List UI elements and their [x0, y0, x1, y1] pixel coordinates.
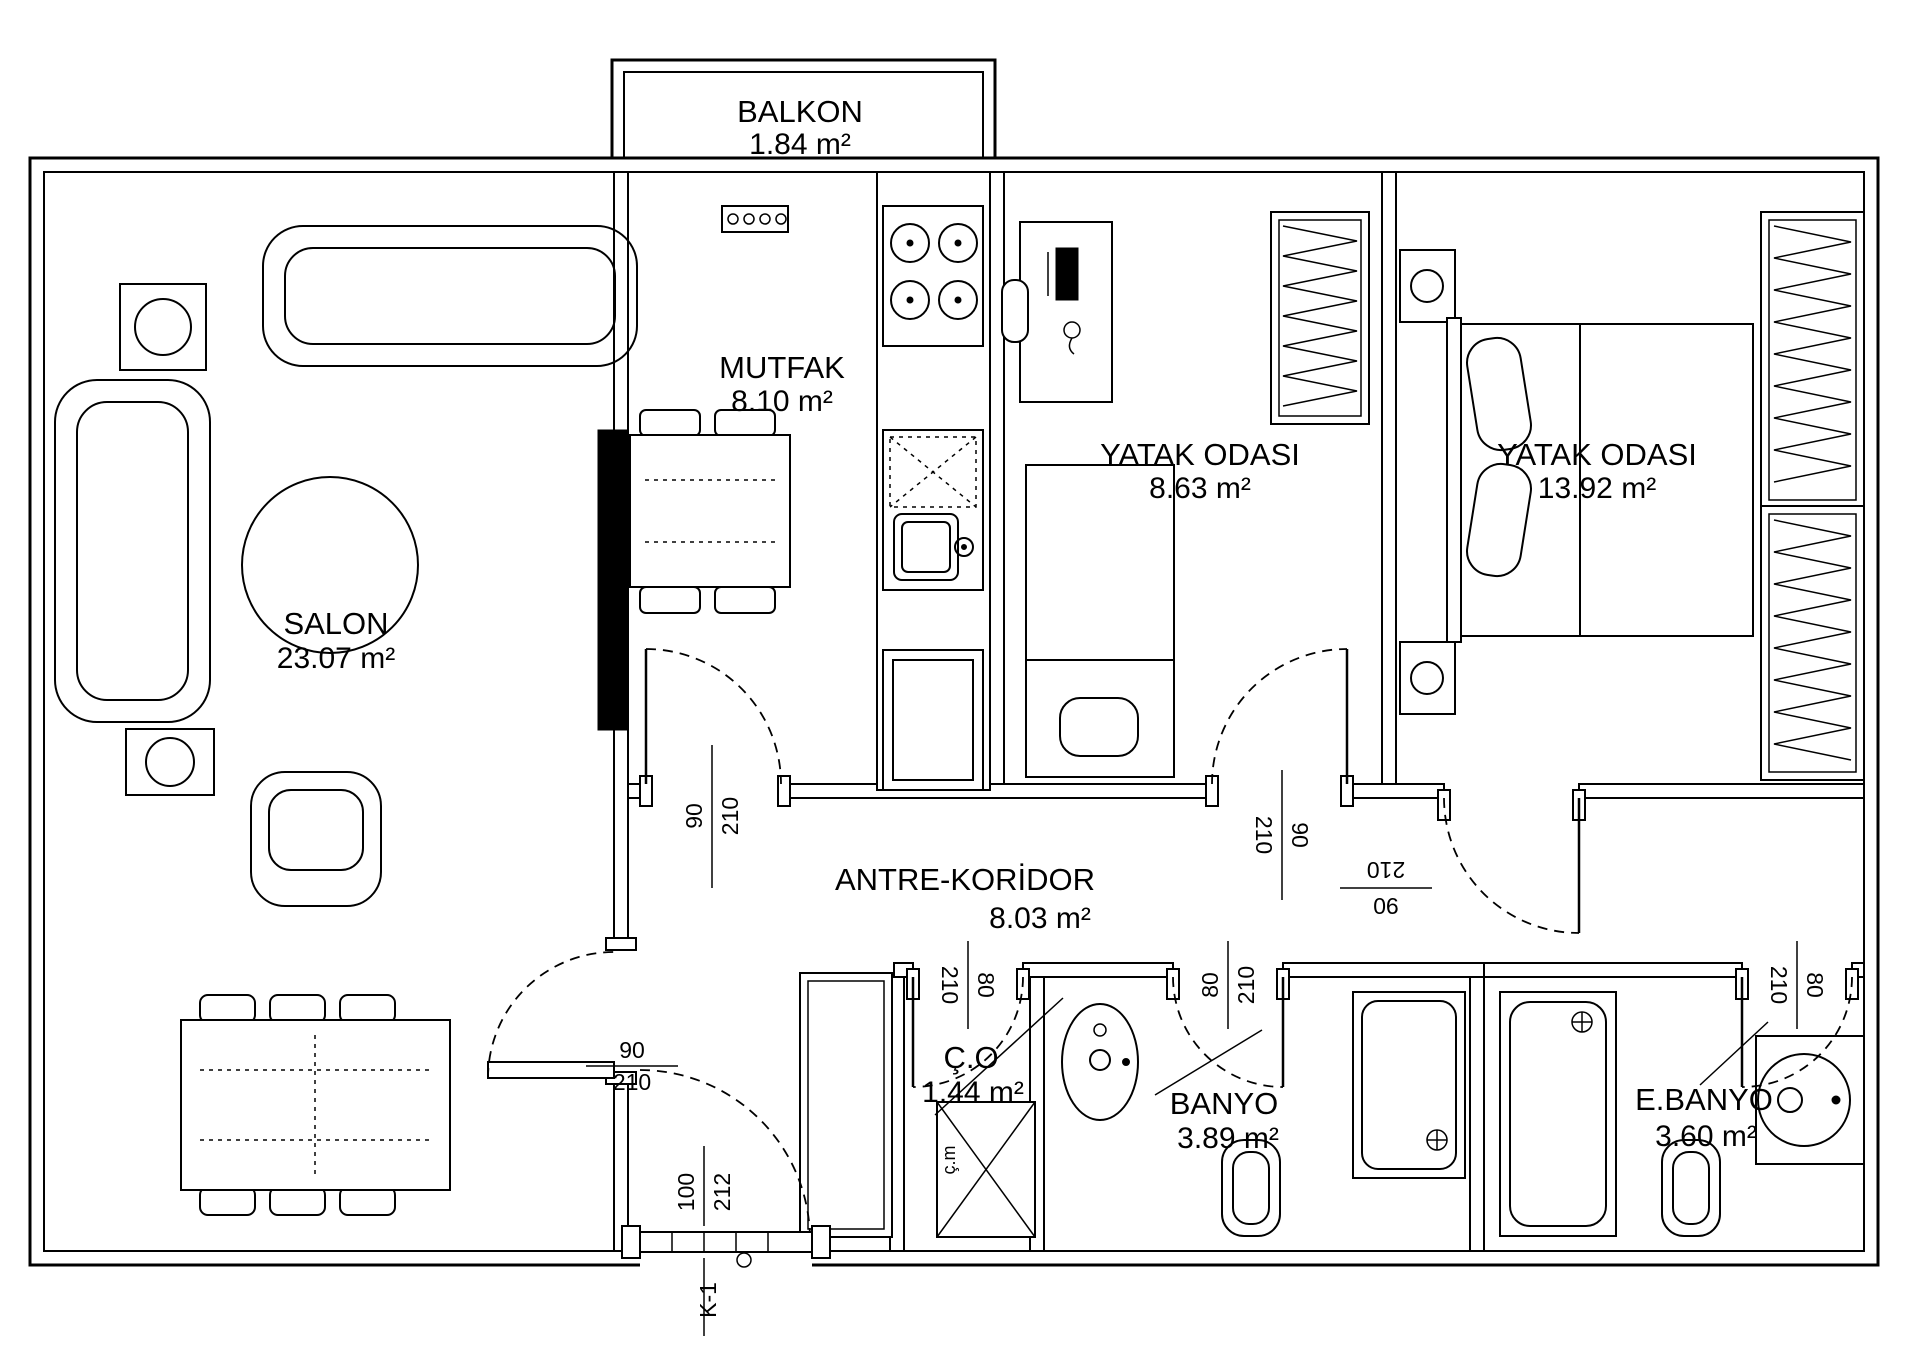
nightstand-bottom — [1400, 642, 1455, 714]
dim-banyo2-door-h: 210 — [1766, 966, 1792, 1004]
toilet-icon-banyo2 — [1662, 1140, 1720, 1236]
dim-entry-door-h: 212 — [709, 1173, 735, 1211]
nightstand-top — [1400, 250, 1455, 322]
washing-machine-label: ç.m — [939, 1146, 959, 1175]
dim-bed1-door-h: 210 — [1251, 816, 1277, 854]
dim-salon-door-w: 90 — [619, 1037, 645, 1063]
area-label-yatak2: 13.92 m² — [1538, 472, 1656, 505]
dim-co-door-h: 210 — [937, 966, 963, 1004]
dim-bed1-door-w: 90 — [1287, 822, 1313, 848]
dining-table — [181, 995, 450, 1215]
wardrobe-right-top — [1761, 212, 1864, 508]
room-label-banyo2: E.BANYO — [1635, 1082, 1773, 1117]
dim-kitchen-door-w: 90 — [681, 803, 707, 829]
single-bed — [1026, 465, 1174, 777]
dim-banyo1-door-h: 210 — [1233, 966, 1259, 1004]
floor-plan-page: ç.m — [0, 0, 1920, 1358]
dim-bed2-door-h: 210 — [1367, 857, 1405, 883]
column — [598, 430, 628, 730]
area-label-banyo2: 3.60 m² — [1655, 1120, 1757, 1153]
room-label-yatak1: YATAK ODASI — [1100, 437, 1300, 472]
area-label-antre: 8.03 m² — [989, 902, 1091, 935]
kitchen-cabinet — [883, 650, 983, 790]
kitchen-sink-icon — [883, 430, 983, 590]
entry-door-code-label: K-1 — [695, 1282, 721, 1318]
room-label-yatak2: YATAK ODASI — [1497, 437, 1697, 472]
area-label-banyo1: 3.89 m² — [1177, 1122, 1279, 1155]
floor-plan-drawing: ç.m — [0, 0, 1920, 1358]
shower-icon-banyo2 — [1500, 992, 1616, 1236]
dim-kitchen-door-h: 210 — [717, 797, 743, 835]
dim-banyo2-door-w: 80 — [1802, 972, 1828, 998]
dim-co-door-w: 80 — [973, 972, 999, 998]
dim-salon-door-h: 210 — [613, 1069, 651, 1095]
room-label-balkon: BALKON — [737, 94, 863, 129]
bathtub-icon-banyo1 — [1353, 992, 1465, 1178]
area-label-mutfak: 8.10 m² — [731, 385, 833, 418]
area-label-yatak1: 8.63 m² — [1149, 472, 1251, 505]
washing-machine: ç.m — [937, 1102, 1035, 1237]
area-label-balkon: 1.84 m² — [749, 128, 851, 161]
room-label-antre: ANTRE-KORİDOR — [835, 862, 1095, 897]
kitchen-table — [630, 410, 790, 613]
room-label-banyo1: BANYO — [1170, 1086, 1279, 1121]
room-label-mutfak: MUTFAK — [719, 350, 845, 385]
room-label-salon: SALON — [283, 606, 388, 641]
shoe-cabinet — [800, 973, 892, 1237]
area-label-co: 1.44 m² — [922, 1076, 1024, 1109]
dim-banyo1-door-w: 80 — [1197, 972, 1223, 998]
knob-panel — [722, 206, 788, 232]
wardrobe-bedroom1 — [1271, 212, 1369, 424]
stove-icon — [883, 206, 983, 346]
room-label-co: Ç.O — [943, 1040, 998, 1075]
wardrobe-right-bottom — [1761, 506, 1864, 780]
area-label-salon: 23.07 m² — [277, 642, 395, 675]
dim-bed2-door-w: 90 — [1373, 893, 1399, 919]
dim-entry-door-w: 100 — [673, 1173, 699, 1211]
